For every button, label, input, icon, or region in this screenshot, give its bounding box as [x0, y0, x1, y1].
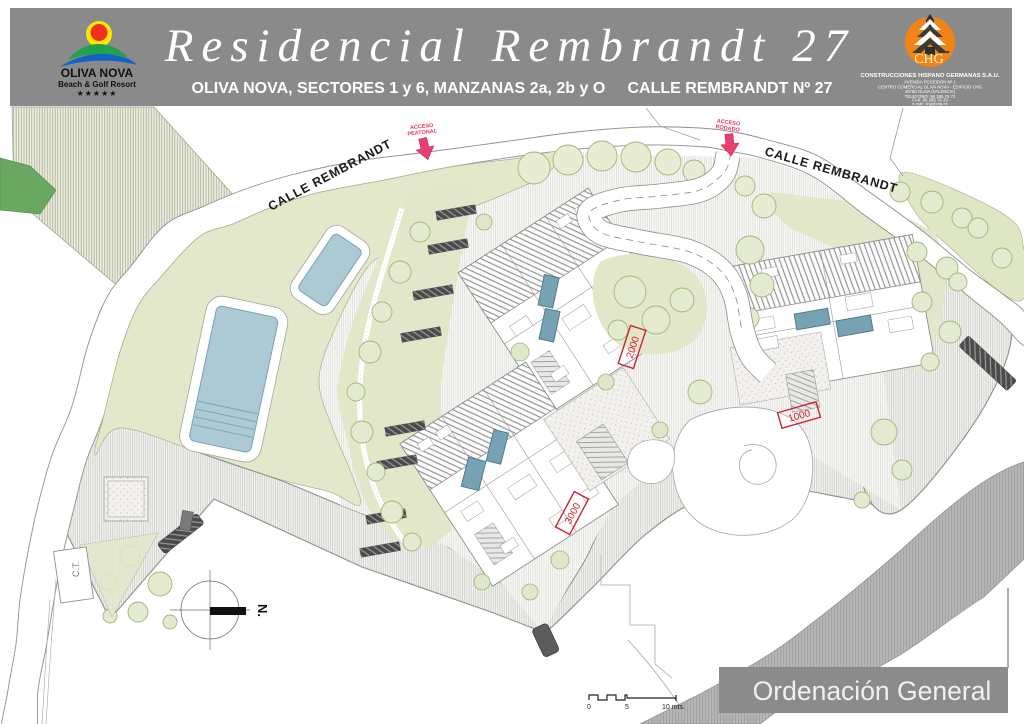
svg-text:★★★★★: ★★★★★	[77, 89, 118, 98]
svg-text:10 mts.: 10 mts.	[662, 704, 685, 711]
svg-text:e-mail: chg@chg.es: e-mail: chg@chg.es	[912, 101, 947, 106]
svg-text:C.T.: C.T.	[71, 561, 81, 577]
svg-text:Residencial Rembrandt 27: Residencial Rembrandt 27	[164, 20, 856, 72]
svg-text:Beach & Golf Resort: Beach & Golf Resort	[58, 80, 136, 89]
svg-text:OLIVA NOVA: OLIVA NOVA	[61, 66, 134, 80]
svg-text:CHG: CHG	[914, 52, 944, 67]
svg-text:Ordenación General: Ordenación General	[753, 676, 992, 706]
svg-text:CONSTRUCCIONES HISPANO GERMANA: CONSTRUCCIONES HISPANO GERMANAS S.A.U.	[861, 73, 1000, 79]
svg-text:5: 5	[625, 704, 629, 711]
svg-text:N.: N.	[255, 604, 270, 617]
svg-text:0: 0	[587, 704, 591, 711]
svg-text:OLIVA NOVA, SECTORES 1 y 6, M: OLIVA NOVA, SECTORES 1 y 6, MANZANAS 2a,…	[192, 80, 833, 97]
